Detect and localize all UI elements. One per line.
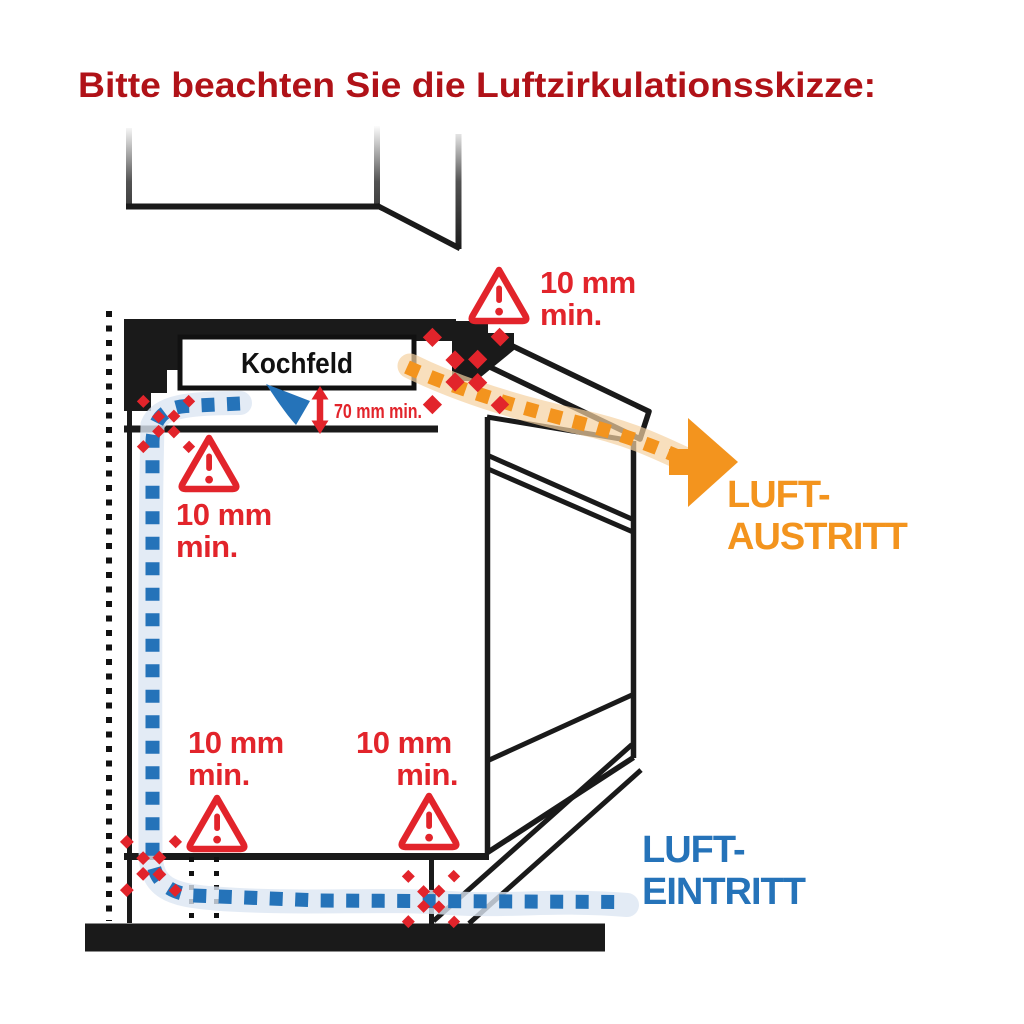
air-outlet-label-line1: LUFT- <box>727 474 830 516</box>
gap-label-bottom-right-line2: min. <box>396 757 458 792</box>
warning-triangle-icon-bottom-left <box>190 798 245 849</box>
air-inlet-label-line1: LUFT- <box>642 829 745 871</box>
gap-label-bottom-right-line1: 10 mm <box>356 725 452 760</box>
air-circulation-sketch-page: Bitte beachten Sie die Luftzirkulationss… <box>0 0 1024 1024</box>
front-control-strip <box>487 455 633 532</box>
air-outlet-label-line2: AUSTRITT <box>727 516 908 558</box>
gap-label-bottom-left-line2: min. <box>188 757 250 792</box>
upper-cabinet-outline <box>126 126 460 249</box>
floor-bar <box>85 924 605 952</box>
gap-label-left-line1: 10 mm <box>176 497 272 532</box>
front-bottom-band <box>487 695 633 762</box>
cabinet-front-perspective <box>434 417 642 924</box>
warning-triangle-icon-bottom-right <box>402 796 457 847</box>
height-clearance-label: 70 mm min. <box>334 401 422 423</box>
air-inlet-label-line2: EINTRITT <box>642 871 806 913</box>
gap-label-bottom-left-line1: 10 mm <box>188 725 284 760</box>
air-circulation-diagram: Bitte beachten Sie die Luftzirkulationss… <box>0 0 1024 1024</box>
gap-label-top-line1: 10 mm <box>540 265 636 300</box>
kochfeld-label: Kochfeld <box>241 348 353 380</box>
warning-triangle-icon-top <box>472 270 527 321</box>
gap-label-left-line2: min. <box>176 529 238 564</box>
page-title: Bitte beachten Sie die Luftzirkulationss… <box>78 66 876 105</box>
upper-cabinet-perspective-edge <box>377 206 460 249</box>
gap-label-top-line2: min. <box>540 297 602 332</box>
air-outlet-flow: LUFT- AUSTRITT <box>407 366 908 558</box>
